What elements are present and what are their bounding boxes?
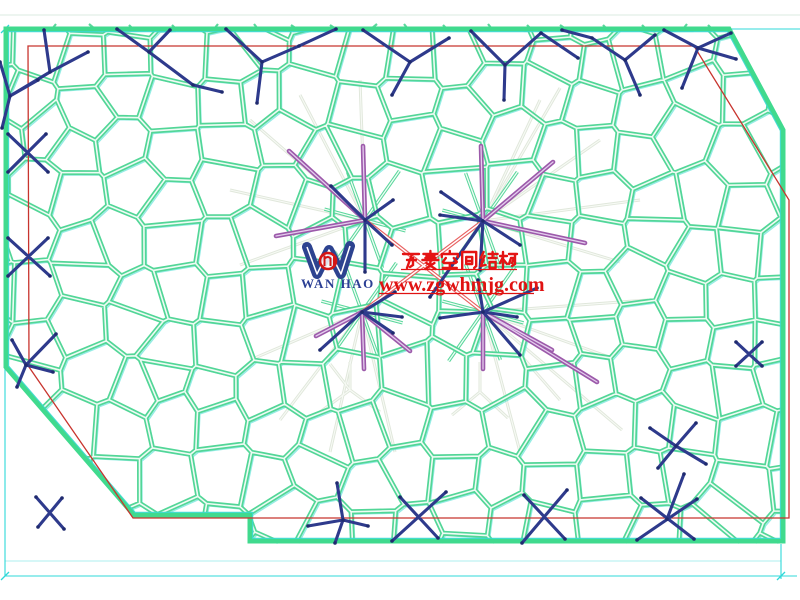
svg-text:www.zgwhmjg.com: www.zgwhmjg.com bbox=[379, 274, 545, 296]
svg-text:WAN HAO: WAN HAO bbox=[301, 276, 375, 291]
